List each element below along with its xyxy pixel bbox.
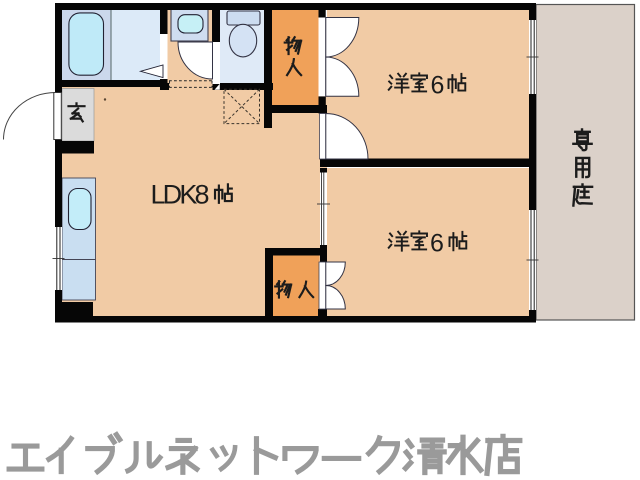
svg-text:6: 6 [431, 72, 445, 100]
svg-text:6: 6 [430, 230, 444, 258]
svg-text:LDK8: LDK8 [151, 180, 210, 210]
